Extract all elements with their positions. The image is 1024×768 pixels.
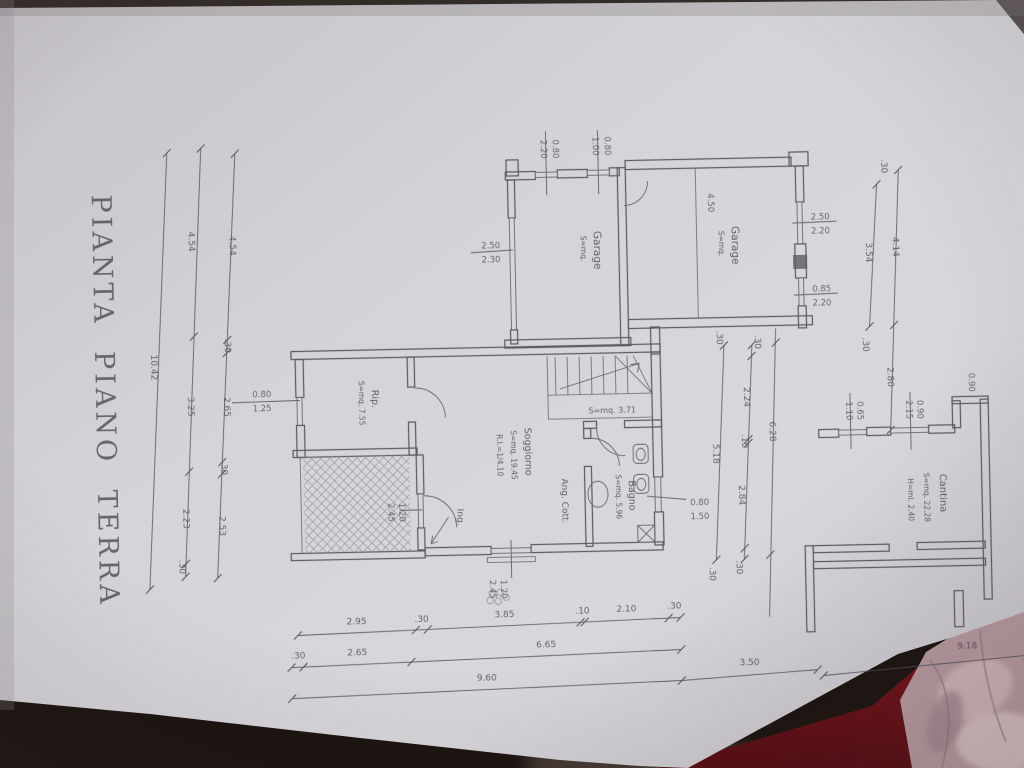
floor-plan-photo: PIANTA PIANO TERRA (0, 0, 1024, 768)
top-edge-shade (0, 0, 1024, 16)
vignette-overlay (0, 0, 1024, 768)
left-edge-shade (0, 0, 14, 710)
